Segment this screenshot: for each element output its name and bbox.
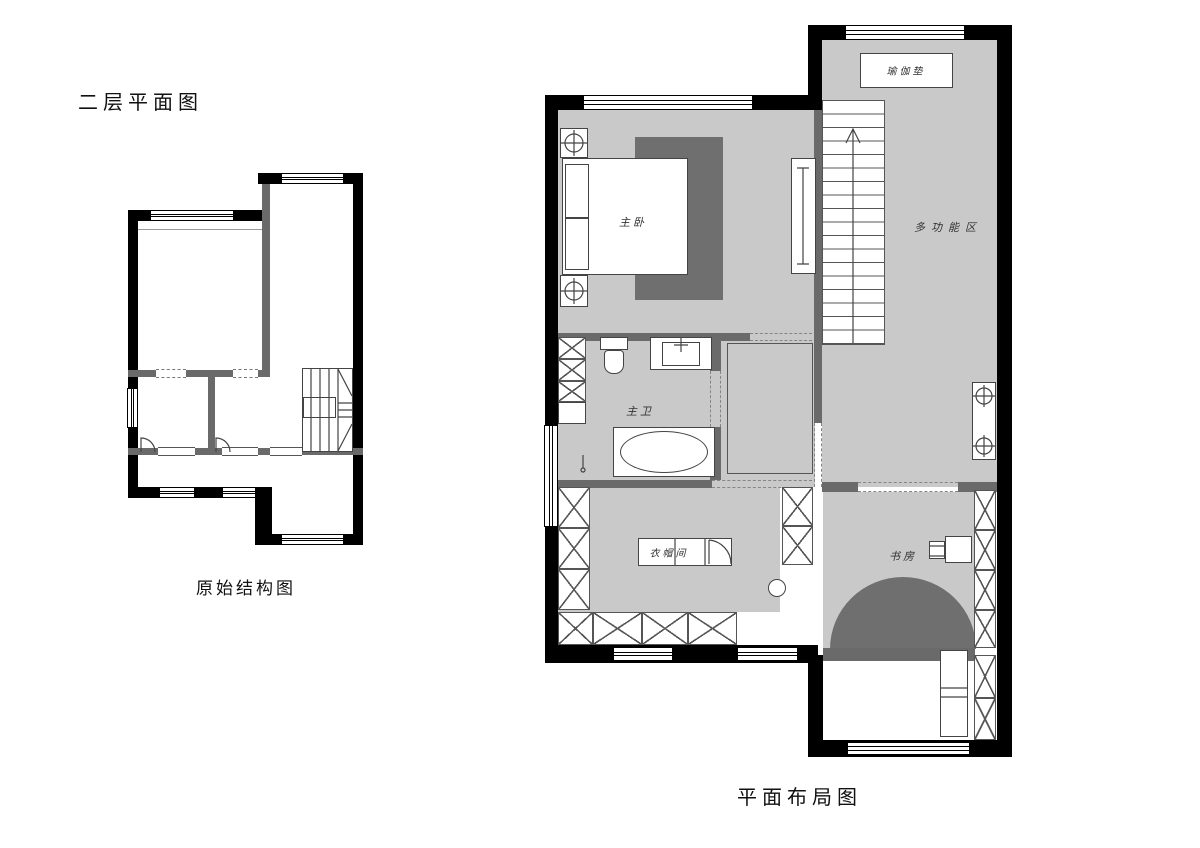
staircase — [822, 100, 885, 345]
chair — [929, 541, 945, 559]
wardrobe-cell — [642, 612, 688, 645]
bed-headboard — [565, 164, 589, 218]
exterior-wall — [997, 25, 1012, 757]
wardrobe-cell — [688, 612, 737, 645]
wardrobe-cell — [558, 569, 590, 610]
bath-shelf-cell — [558, 359, 586, 381]
bookshelf-cell — [974, 490, 996, 530]
opening-dashed — [710, 371, 721, 427]
room-label-multi-function: 多功能区 — [914, 219, 982, 235]
room-label-master-bedroom: 主卧 — [619, 214, 647, 230]
window — [613, 647, 673, 661]
window — [583, 95, 753, 110]
opening-dashed — [750, 333, 812, 341]
bookshelf-cell — [974, 610, 996, 648]
window — [845, 25, 965, 40]
nightstand — [560, 275, 588, 307]
bath-shelf-cell — [558, 402, 586, 424]
window — [847, 742, 970, 755]
sliding-door — [791, 158, 816, 274]
toilet-tank — [600, 337, 628, 350]
wardrobe-cell — [558, 487, 590, 528]
stool — [768, 579, 786, 597]
wardrobe-cell — [558, 612, 593, 645]
window — [737, 647, 798, 661]
bathtub-inner — [620, 431, 708, 473]
bed-headboard — [565, 218, 589, 270]
balcony-desk — [940, 650, 968, 737]
room-label-study: 书房 — [889, 548, 917, 564]
bath-shelf-cell — [558, 337, 586, 359]
opening-dashed — [814, 423, 822, 487]
window — [544, 425, 558, 527]
room-label-master-bathroom: 主卫 — [626, 403, 654, 419]
opening-dashed — [858, 482, 958, 492]
floor-plan-canvas: 二层平面图 原始结构图 平面布局图 — [0, 0, 1200, 848]
vanity-basin — [662, 342, 700, 366]
exterior-wall — [545, 95, 558, 663]
shower-enclosure — [727, 343, 813, 474]
bookshelf-cell — [974, 655, 996, 698]
bookshelf-cell — [974, 698, 996, 740]
exterior-wall — [808, 25, 822, 100]
room-label-yoga-mat: 瑜伽垫 — [887, 63, 926, 78]
nightstand — [560, 128, 588, 158]
bookshelf-cell — [974, 570, 996, 610]
interior-wall — [822, 482, 858, 492]
wardrobe-cell — [782, 526, 813, 565]
room-label-walk-in-closet: 衣帽间 — [650, 545, 689, 560]
wardrobe-cell — [558, 528, 590, 569]
bath-shelf-cell — [558, 381, 586, 402]
toilet-bowl — [604, 350, 624, 374]
wardrobe-cell — [782, 487, 813, 526]
wardrobe-cell — [593, 612, 642, 645]
console-table — [972, 382, 996, 460]
desk — [945, 536, 972, 563]
layout-plan: 瑜伽垫 主卧 多功能区 主卫 衣帽间 书房 — [0, 0, 1200, 848]
bookshelf-cell — [974, 530, 996, 570]
